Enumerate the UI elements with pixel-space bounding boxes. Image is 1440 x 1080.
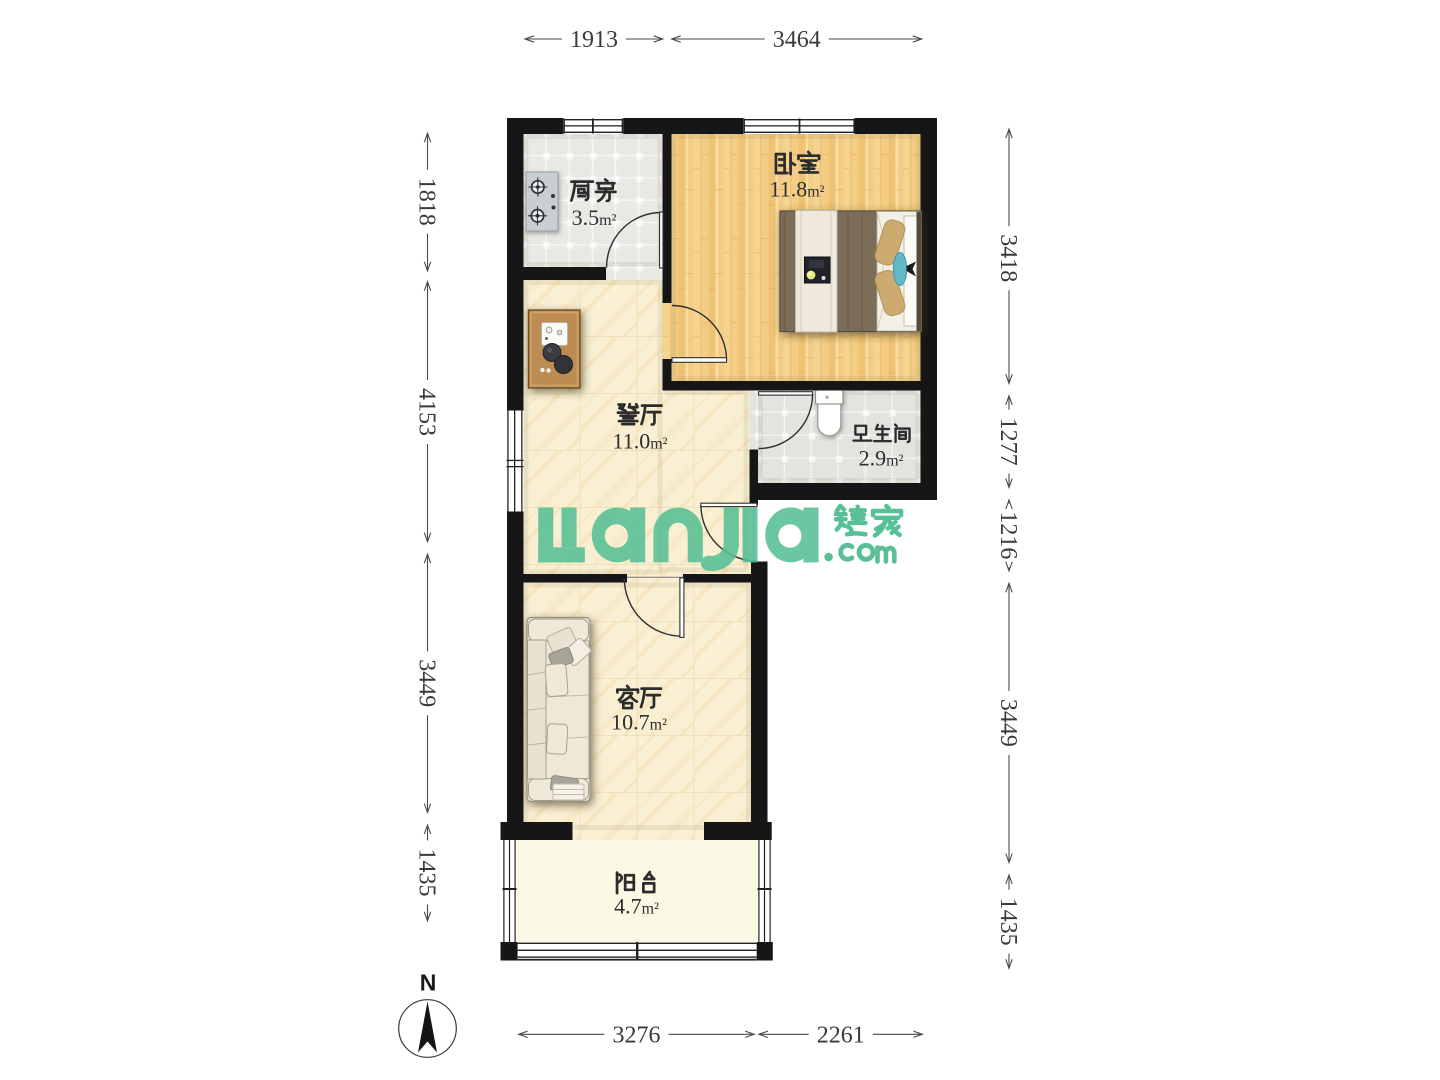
- svg-text:3276: 3276: [613, 1022, 661, 1048]
- svg-text:N: N: [420, 970, 437, 996]
- svg-text:3464: 3464: [773, 27, 821, 53]
- svg-text:4153: 4153: [414, 388, 440, 436]
- svg-text:1216: 1216: [995, 511, 1021, 559]
- svg-text:1435: 1435: [995, 898, 1021, 946]
- svg-text:1818: 1818: [414, 178, 440, 226]
- svg-text:3449: 3449: [414, 659, 440, 707]
- svg-text:3449: 3449: [995, 699, 1021, 747]
- svg-text:3418: 3418: [995, 234, 1021, 282]
- svg-text:1277: 1277: [995, 418, 1021, 466]
- svg-text:1913: 1913: [570, 27, 618, 53]
- svg-text:1435: 1435: [414, 849, 440, 897]
- svg-text:2261: 2261: [817, 1022, 865, 1048]
